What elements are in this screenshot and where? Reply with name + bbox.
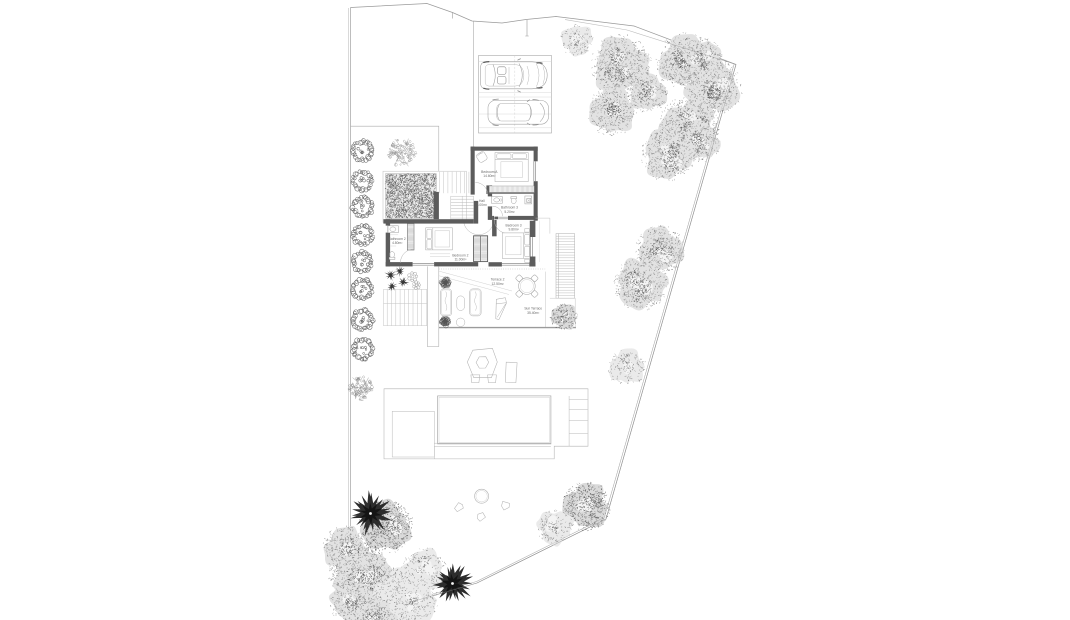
svg-text:Bedroom A: Bedroom A [481, 170, 498, 174]
svg-text:14.60m²: 14.60m² [483, 174, 496, 178]
svg-text:11.00m²: 11.00m² [454, 258, 467, 262]
svg-text:Tree: Tree [359, 399, 364, 402]
svg-text:4.80m²: 4.80m² [392, 241, 403, 245]
svg-text:12.50m²: 12.50m² [492, 282, 505, 286]
svg-text:35.40m²: 35.40m² [527, 311, 540, 315]
svg-text:Tree: Tree [584, 50, 589, 53]
svg-text:9.80m²: 9.80m² [508, 228, 519, 232]
svg-text:3.00m²: 3.00m² [477, 203, 488, 207]
svg-text:Bedroom 2: Bedroom 2 [452, 253, 468, 257]
svg-text:Tree: Tree [401, 162, 406, 165]
svg-text:Bedroom 3: Bedroom 3 [506, 223, 522, 227]
svg-text:5.20m²: 5.20m² [504, 210, 515, 214]
